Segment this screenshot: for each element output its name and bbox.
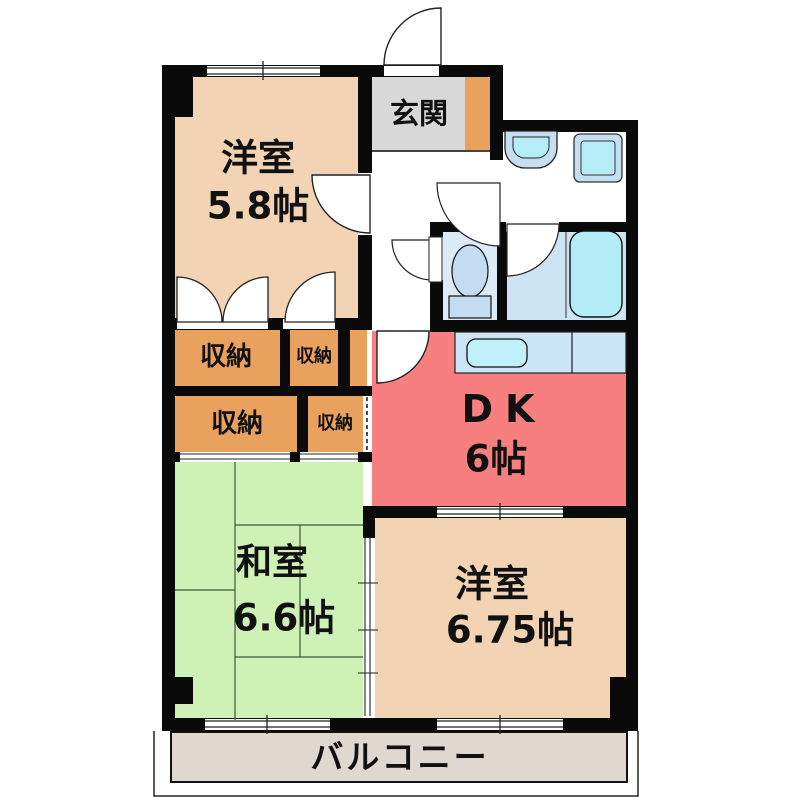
wall: [497, 232, 507, 330]
label-dk-size: 6帖: [465, 441, 528, 478]
label-western2-name: 洋室: [455, 566, 529, 603]
label-closet-large-1: 収納: [200, 344, 252, 370]
toilet-door-swing: [392, 240, 432, 280]
label-dk-name: DK: [462, 390, 547, 428]
wall: [162, 386, 372, 396]
label-western1-size: 5.8帖: [207, 188, 310, 225]
wall: [280, 328, 290, 386]
label-closet-small-2: 収納: [317, 415, 353, 433]
wall: [162, 452, 372, 462]
wall: [162, 65, 175, 731]
entrance-shoe-cabinet: [465, 77, 492, 150]
wall: [358, 77, 372, 173]
label-entrance: 玄関: [390, 100, 448, 129]
room-toilet: [443, 232, 497, 320]
wall: [430, 222, 506, 232]
label-japanese-name: 和室: [236, 545, 308, 581]
washbasin-icon: [505, 131, 557, 168]
sliding-partition-track: [363, 538, 375, 716]
entrance-door-swing: [384, 8, 441, 65]
label-closet-large-2: 収納: [211, 411, 263, 437]
wall-corner: [162, 65, 193, 117]
label-closet-small-1: 収納: [296, 348, 332, 366]
label-japanese-size: 6.6帖: [233, 600, 336, 637]
dk-door-opening: [372, 318, 430, 331]
wall: [626, 120, 638, 731]
entrance-door-opening: [384, 66, 439, 76]
bath-door-opening: [506, 221, 559, 232]
wall: [363, 506, 638, 518]
wall: [559, 222, 638, 232]
wall: [490, 132, 503, 160]
wall: [162, 65, 503, 77]
room-japanese-6-6: [175, 462, 363, 720]
wall-corner: [162, 677, 193, 704]
wall: [358, 235, 372, 330]
floor-plan: 洋室 5.8帖 玄関 収納 収納 収納 収納 DK 6帖 和室 6.6帖 洋室 …: [0, 0, 800, 800]
wall: [490, 120, 638, 132]
western1-door-opening: [358, 173, 372, 235]
wall: [430, 320, 638, 332]
closet-single-door-opening: [283, 319, 335, 329]
closet-sliver: [350, 328, 367, 386]
label-western2-size: 6.75帖: [446, 612, 574, 649]
toilet-door-leaf: [429, 237, 442, 282]
room-bath: [507, 232, 626, 320]
wall: [162, 718, 638, 731]
closet-double-door-opening: [177, 319, 268, 329]
label-balcony: バルコニー: [310, 741, 489, 774]
wall: [363, 518, 375, 538]
washroom-door-opening: [490, 160, 503, 222]
label-western1-name: 洋室: [221, 140, 295, 177]
washing-machine-icon: [574, 134, 622, 182]
wall: [338, 328, 350, 386]
wall: [297, 396, 308, 452]
dk-closet-open-boundary: [363, 396, 372, 452]
wall-corner: [610, 677, 638, 731]
